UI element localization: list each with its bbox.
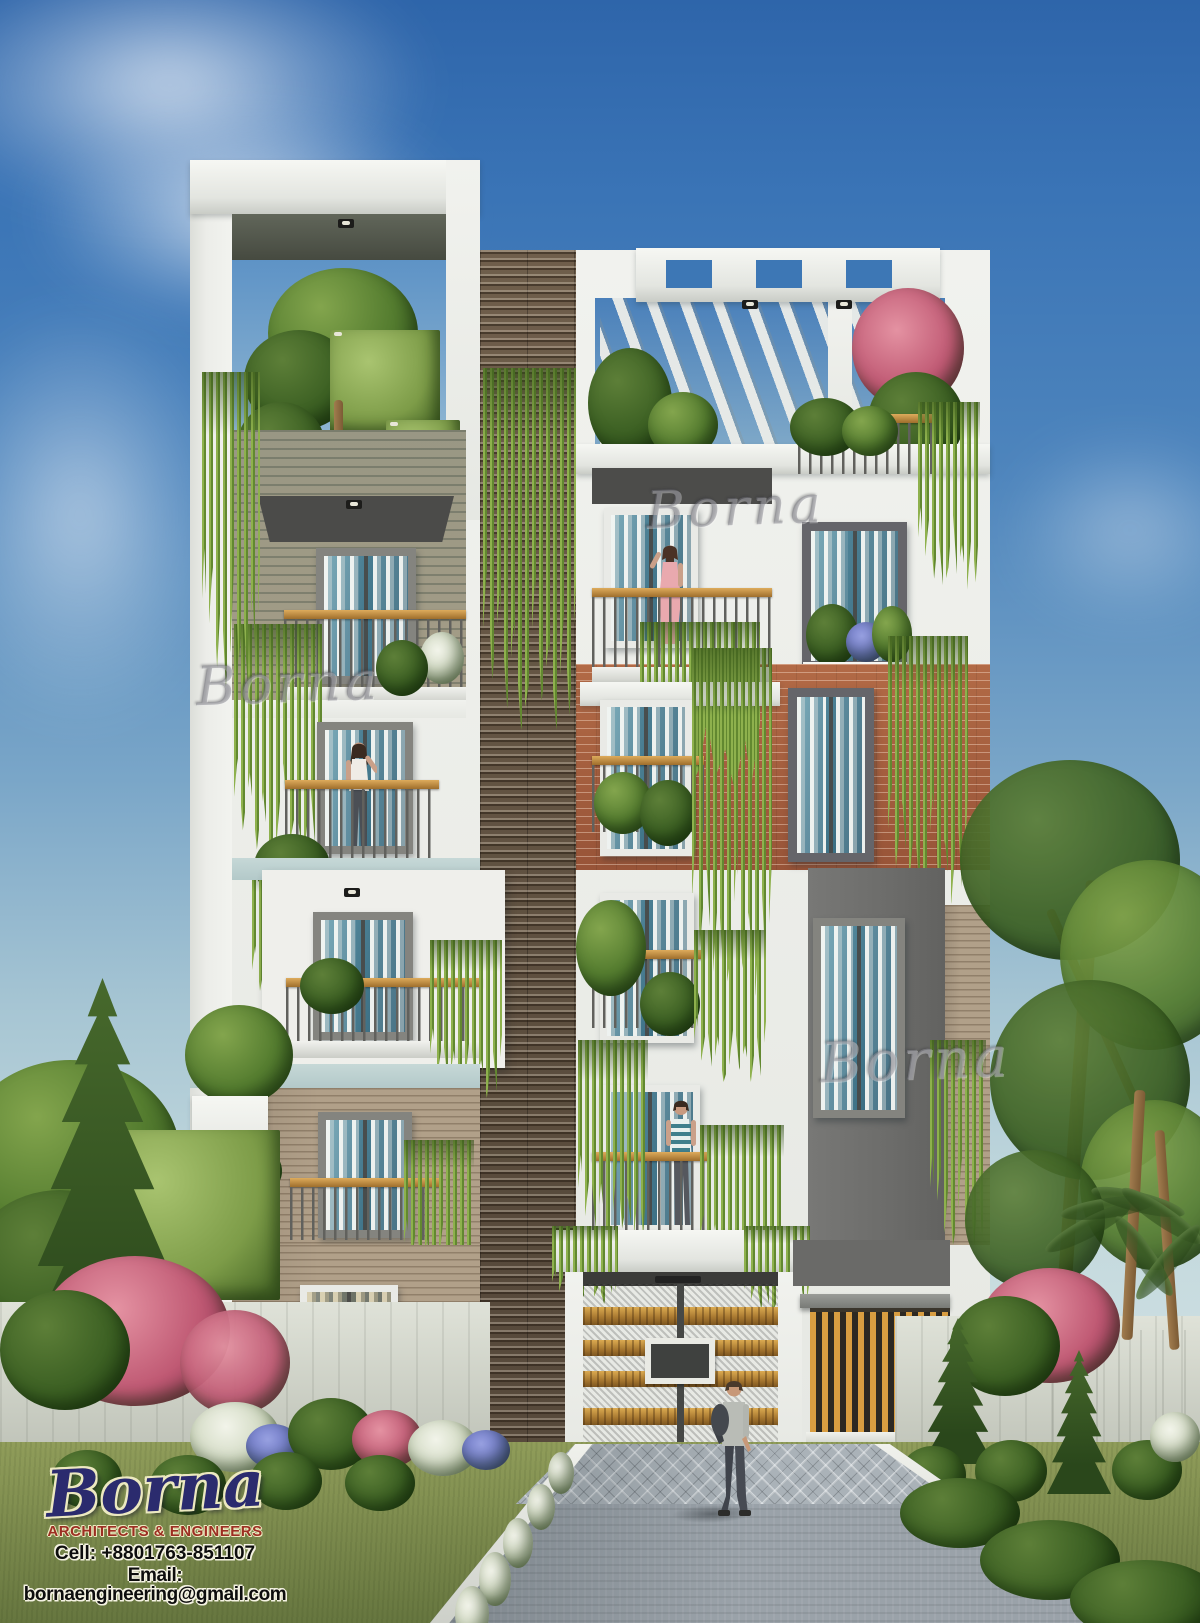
- tower-top-slab: [190, 160, 480, 214]
- ceiling-light: [344, 888, 360, 897]
- pergola-light: [836, 300, 852, 309]
- cloud: [1000, 430, 1200, 630]
- contact-phone: Cell: +8801763-851107: [0, 1544, 310, 1563]
- facade-plant: [185, 1005, 293, 1105]
- gate-jamb: [565, 1272, 583, 1460]
- bougainvillea-foliage: [0, 1290, 130, 1410]
- awning: [800, 1294, 950, 1308]
- brand-name: Borna: [44, 1452, 266, 1527]
- watermark-borna: Borna: [195, 649, 382, 718]
- hydrangea: [462, 1430, 510, 1470]
- window-right-f4: [788, 688, 874, 862]
- watermark-borna: Borna: [645, 475, 826, 541]
- architectural-render: Borna Borna Borna Borna ARCHITECTS & ENG…: [0, 0, 1200, 1623]
- ceiling-light: [338, 219, 354, 228]
- balcony-plant: [300, 958, 364, 1014]
- balcony-plant: [640, 780, 696, 846]
- watermark-borna: Borna: [819, 1025, 1012, 1097]
- company-logo: Borna ARCHITECTS & ENGINEERS Cell: +8801…: [0, 1458, 310, 1604]
- balcony-plant: [576, 900, 646, 996]
- balcony-plant: [376, 640, 428, 696]
- round-bush: [345, 1455, 415, 1511]
- balcony-plant: [640, 972, 700, 1036]
- gate-closer: [655, 1276, 701, 1283]
- flower-bush: [1150, 1412, 1200, 1462]
- gate-emblem-frame: [645, 1338, 715, 1384]
- gray-band: [793, 1240, 950, 1286]
- terrace-ivy: [842, 406, 898, 456]
- feather-grass: [503, 1518, 533, 1568]
- person-man-walking: [706, 1378, 760, 1518]
- bougainvillea: [180, 1310, 290, 1415]
- ceiling-light: [346, 500, 362, 509]
- feather-grass: [527, 1484, 555, 1530]
- contact-email: Email: bornaengineering@gmail.com: [0, 1566, 310, 1604]
- gate-jamb: [778, 1272, 802, 1460]
- pergola-beam-cutout: [756, 260, 802, 288]
- pergola-beam-cutout: [666, 260, 712, 288]
- pergola-light: [742, 300, 758, 309]
- pergola-beam-cutout: [846, 260, 892, 288]
- feather-grass: [548, 1452, 574, 1494]
